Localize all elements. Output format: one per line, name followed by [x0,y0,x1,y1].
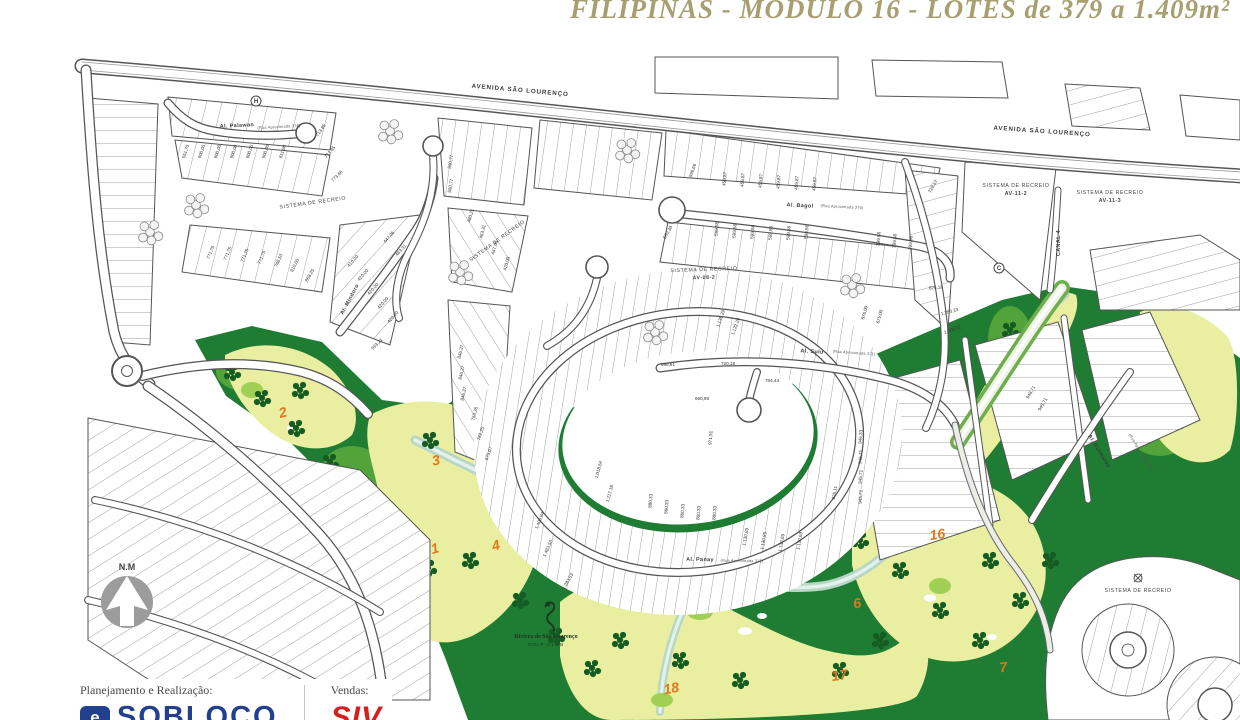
tree-icon [147,236,156,245]
lot-area-label: 764,44 [765,378,779,383]
footer-divider [304,685,305,720]
tree-icon [457,276,466,285]
zone-label: SISTEMA DE RECREIO [1104,588,1171,594]
tree-icon [518,603,524,609]
tree-icon [292,391,298,397]
tree-icon [880,632,886,638]
tree-icon [590,671,596,677]
tree-icon [423,433,429,439]
tree-icon [470,552,476,558]
street-name-label: Al. Bagol [786,202,813,209]
compass-label: N.M [119,562,136,572]
plan-canvas: N.M Riviera de São Lourenço GOLF CLUB AV… [0,0,1240,720]
tree-icon [652,336,661,345]
tree-icon [673,653,679,659]
zone-label: SISTEMA DE RECREIO [279,195,346,210]
lot-area-label: 675,00 [875,309,884,324]
tree-icon [624,154,633,163]
tree-icon [460,261,469,270]
subdivision-map: N.M Riviera de São Lourenço GOLF CLUB AV… [0,0,1240,720]
tree-icon [463,553,469,559]
tree-icon [982,561,988,567]
tree-icon [645,322,654,331]
tree-icon [300,382,306,388]
tree-icon [616,151,625,160]
street-name-label: CANAL 4 [1056,230,1062,256]
tree-icon [230,375,236,381]
lot-area-label: 720,18 [721,361,735,366]
tree-icon [513,593,519,599]
tree-icon [224,373,230,379]
tree-icon [294,431,300,437]
tree-icon [193,209,202,218]
tree-icon [1010,322,1016,328]
tree-icon [323,455,329,461]
tree-icon [254,399,260,405]
hole-number: 16 [928,525,946,543]
tree-icon [196,194,205,203]
zone-sub-label: AV-11-3 [1099,198,1122,204]
tree-icon [738,683,744,689]
street-name-label: Al. Panay [686,557,714,563]
sales-label: Vendas: [331,683,382,698]
golf-club-subtitle: GOLF CLUB [528,642,565,647]
tree-icon [185,206,194,215]
tree-icon [732,681,738,687]
tree-icon [972,641,978,647]
tree-icon [1043,553,1049,559]
avenue-label: AVENIDA SÃO LOURENÇO [471,83,569,98]
tree-icon [933,603,939,609]
lot-area-label: 459,87 [793,175,799,190]
tree-icon [262,390,268,396]
tree-icon [585,661,591,667]
tree-icon [422,441,428,447]
tree-icon [1020,592,1026,598]
tree-icon [512,601,518,607]
tree-icon [330,454,336,460]
tree-icon [428,443,434,449]
tree-icon [849,289,858,298]
tree-icon [872,641,878,647]
tree-icon [900,562,906,568]
block-center-n [534,120,662,200]
lot-area-label: 690,99 [695,396,709,401]
tree-icon [938,613,944,619]
tree-icon [390,120,399,129]
street-sub-label: (Rua Aproximada 370) [821,203,865,210]
sobloco-logo-icon: e [80,706,110,720]
tree-icon [893,563,899,569]
tree-icon [627,139,636,148]
tree-icon [612,641,618,647]
tree-icon [255,391,261,397]
lot-area-label: 698,61 [661,362,675,367]
tree-icon [293,383,299,389]
sales-block: Vendas: SIV [331,683,382,720]
zone-sub-label: AV-08-2 [692,275,715,282]
tree-icon [672,661,678,667]
tree-icon [1048,563,1054,569]
tree-icon [858,543,864,549]
tree-icon [592,660,598,666]
siv-logo-text: SIV [331,701,382,720]
planning-label: Planejamento e Realização: [80,683,278,698]
tree-icon [990,552,996,558]
block-canal-east [1090,235,1240,310]
block-marker-letter: H [254,99,258,105]
tree-icon [878,643,884,649]
street-sub-label: (Rua Aproximada 372) [721,558,765,564]
footer-brands: Planejamento e Realização: e SOBLOCO Ven… [70,679,392,720]
lot-area-label: 676,00 [860,305,869,320]
tree-icon [1050,552,1056,558]
tree-icon [462,561,468,567]
tree-icon [288,429,294,435]
zone-label: SISTEMA DE RECREIO [1076,190,1143,196]
tree-icon [260,401,266,407]
golf-club-name: Riviera de São Lourenço [514,634,577,640]
lot-area-label: 459,87 [811,176,817,191]
tree-icon [520,592,526,598]
tree-icon [140,222,149,231]
tree-icon [940,602,946,608]
tree-icon [932,611,938,617]
tree-icon [841,286,850,295]
tree-icon [296,420,302,426]
tree-icon [1042,561,1048,567]
tree-icon [450,262,459,271]
tree-icon [873,633,879,639]
tree-icon [289,421,295,427]
tree-icon [892,571,898,577]
tree-icon [678,663,684,669]
tree-icon [988,563,994,569]
zone-sub-label: AV-11-2 [1005,191,1028,197]
tree-icon [680,652,686,658]
tree-icon [139,233,148,242]
tree-icon [380,121,389,130]
tree-icon [983,553,989,559]
hole-number: 18 [662,679,680,697]
tree-icon [733,673,739,679]
lot-area-label: 459,87 [721,171,727,186]
tree-icon [468,563,474,569]
lot-area-label: 773,86 [330,169,344,183]
plan-title: FILIPINAS - MODULO 16 - LOTES de 379 a 1… [555,0,1240,25]
tree-icon [584,669,590,675]
tree-icon [379,132,388,141]
tree-icon [978,643,984,649]
lot-area-label: 459,87 [757,173,763,188]
tree-icon [1013,593,1019,599]
zone-label: SISTEMA DE RECREIO [982,183,1049,189]
tree-icon [150,221,159,230]
block-marker-letter: C [997,266,1002,272]
tree-icon [740,672,746,678]
tree-icon [644,333,653,342]
tree-icon [298,393,304,399]
tree-icon [1018,603,1024,609]
tree-icon [186,195,195,204]
tree-icon [973,633,979,639]
tree-icon [1003,323,1009,329]
sobloco-logo-text: SOBLOCO [117,701,278,720]
tree-icon [430,432,436,438]
tree-icon [655,321,664,330]
tree-icon [613,633,619,639]
tree-icon [618,643,624,649]
tree-icon [980,632,986,638]
tree-icon [387,135,396,144]
tree-icon [620,632,626,638]
lot-area-label: 459,87 [775,174,781,189]
tree-icon [449,273,458,282]
lot-area-label: 459,87 [739,172,745,187]
tree-icon [1012,601,1018,607]
tree-icon [842,275,851,284]
tree-icon [617,140,626,149]
planning-block: Planejamento e Realização: e SOBLOCO [80,683,278,720]
tree-icon [898,573,904,579]
tree-icon [852,274,861,283]
